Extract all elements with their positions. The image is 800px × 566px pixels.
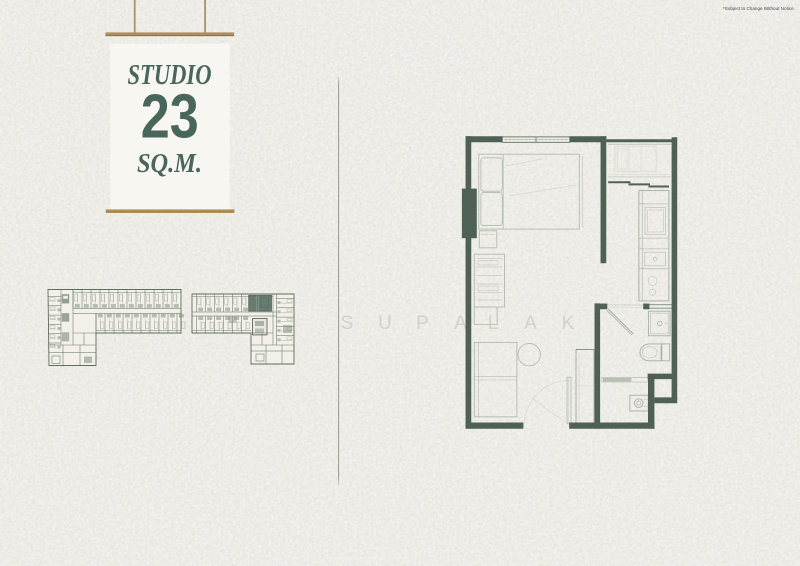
svg-text:A: A bbox=[524, 313, 537, 334]
svg-text:S: S bbox=[341, 313, 354, 334]
svg-text:SQ.M.: SQ.M. bbox=[137, 148, 202, 178]
svg-text:A: A bbox=[454, 313, 467, 334]
svg-text:K: K bbox=[562, 313, 575, 334]
svg-text:*Subject to Change Without Not: *Subject to Change Without Notice. bbox=[723, 6, 795, 11]
svg-text:U: U bbox=[378, 313, 392, 334]
svg-text:23: 23 bbox=[141, 83, 199, 152]
svg-text:P: P bbox=[416, 313, 429, 334]
